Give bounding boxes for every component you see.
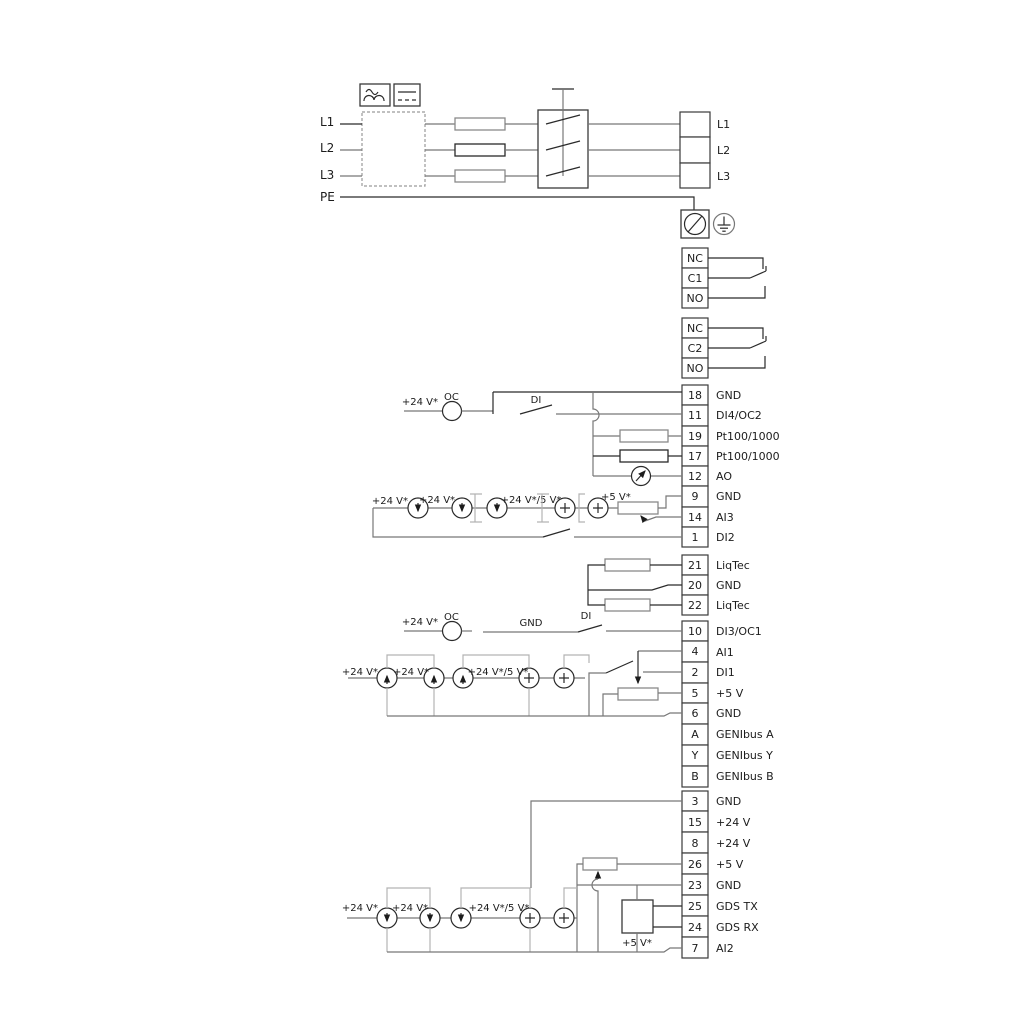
wire xyxy=(645,517,682,521)
ann-s5-24v-b: +24 V* xyxy=(392,903,428,914)
terminal-7-label: AI2 xyxy=(716,942,734,955)
terminal-26: 26 xyxy=(688,858,702,871)
fuse-l2 xyxy=(455,144,505,156)
ann-s3-gnd: GND xyxy=(520,618,543,629)
liqtec-terminal-block: 21 20 22 LiqTec GND LiqTec xyxy=(682,555,750,615)
ann-s1-24v: +24 V* xyxy=(402,397,438,408)
potentiometer-ai1 xyxy=(618,688,658,700)
wire xyxy=(577,864,583,885)
wire xyxy=(603,694,618,716)
terminal-9: 9 xyxy=(692,490,699,503)
diagram-svg: L1 L2 L3 PE xyxy=(0,0,1024,1024)
terminal-24: 24 xyxy=(688,921,702,934)
label-l1-out: L1 xyxy=(717,118,730,131)
terminal-12: 12 xyxy=(688,470,702,483)
liqtec-sensor-2 xyxy=(605,599,650,611)
potentiometer-ai3 xyxy=(618,502,658,514)
terminal-23: 23 xyxy=(688,879,702,892)
relay1-block: NC C1 NO xyxy=(682,248,766,308)
wires-to-fuses xyxy=(425,124,455,176)
loop xyxy=(387,688,529,716)
io3-terminal-block: 3 15 8 26 23 25 24 7 GND +24 V +24 V +5 … xyxy=(682,791,759,958)
terminal-22-label: LiqTec xyxy=(716,599,750,612)
pt100-sensor-1 xyxy=(620,430,668,442)
terminal-18-label: GND xyxy=(716,389,741,402)
loop xyxy=(387,928,530,952)
label-l3-out: L3 xyxy=(717,170,730,183)
wiring-diagram: L1 L2 L3 PE xyxy=(0,0,1024,1024)
io2-wiring: +24 V* OC GND DI +24 V* +24 V* +24 V*/5 … xyxy=(342,611,682,716)
pt100-sensor-2 xyxy=(620,450,668,462)
terminal-21: 21 xyxy=(688,559,702,572)
oc-contact-2 xyxy=(443,622,462,641)
terminal-25-label: GDS TX xyxy=(716,900,758,913)
terminal-20: 20 xyxy=(688,579,702,592)
terminal-6-label: GND xyxy=(716,707,741,720)
ann-s4-24v-a: +24 V* xyxy=(342,667,378,678)
wire xyxy=(653,906,682,927)
relay2-nc-wire xyxy=(708,328,763,339)
relay1-no-wire xyxy=(708,286,765,298)
label-l3-in: L3 xyxy=(320,168,334,182)
terminal-17: 17 xyxy=(688,450,702,463)
terminal-b-label: GENIbus B xyxy=(716,770,774,783)
terminal-15: 15 xyxy=(688,816,702,829)
terminal-18: 18 xyxy=(688,389,702,402)
terminal-5: 5 xyxy=(692,687,699,700)
terminal-7: 7 xyxy=(692,942,699,955)
ann-s1-di: DI xyxy=(531,395,542,406)
terminal-8: 8 xyxy=(692,837,699,850)
relay1-nc: NC xyxy=(687,252,703,265)
gds-sensor-box xyxy=(622,900,653,933)
liqtec-sensor-1 xyxy=(605,559,650,571)
ann-s3-24v: +24 V* xyxy=(402,617,438,628)
io2-terminal-block: 10 4 2 5 6 A Y B DI3/OC1 AI1 DI1 +5 V GN… xyxy=(682,621,774,787)
terminal-2-label: DI1 xyxy=(716,666,735,679)
wire-pe xyxy=(340,197,694,210)
wire xyxy=(387,713,682,716)
terminal-y-label: GENIbus Y xyxy=(716,749,773,762)
relay1-no: NO xyxy=(687,292,704,305)
terminal-20-label: GND xyxy=(716,579,741,592)
label-pe-in: PE xyxy=(320,190,335,204)
wire xyxy=(588,585,682,590)
terminal-12-label: AO xyxy=(716,470,732,483)
dc-symbol-icon xyxy=(394,84,420,106)
io1-terminal-block: 18 11 19 17 12 9 14 1 GND DI4/OC2 Pt100/… xyxy=(682,385,780,547)
relay1-nc-wire xyxy=(708,258,763,269)
contactor xyxy=(538,89,588,188)
io1-wiring: +24 V* OC DI xyxy=(402,392,682,486)
filter-box xyxy=(362,112,425,186)
terminal-21-label: LiqTec xyxy=(716,559,750,572)
wire xyxy=(658,496,682,508)
terminal-25: 25 xyxy=(688,900,702,913)
terminal-23-label: GND xyxy=(716,879,741,892)
loop xyxy=(564,888,577,908)
ann-s2-24v5v: +24 V*/5 V* xyxy=(501,495,562,506)
terminal-a-label: GENIbus A xyxy=(716,728,774,741)
terminal-24-label: GDS RX xyxy=(716,921,759,934)
terminal-4: 4 xyxy=(692,645,699,658)
wires-to-terminals xyxy=(588,124,680,176)
terminal-1-label: DI2 xyxy=(716,531,735,544)
branch-vertical xyxy=(593,392,599,476)
terminal-26-label: +5 V xyxy=(716,858,744,871)
pe-gland xyxy=(681,210,709,238)
ann-s5-24v5v: +24 V*/5 V* xyxy=(469,903,530,914)
terminal-6: 6 xyxy=(692,707,699,720)
wires-to-contactor xyxy=(505,124,540,176)
ann-s3-di: DI xyxy=(581,611,592,622)
wiper-stem xyxy=(592,879,598,952)
wire xyxy=(373,508,543,537)
liqtec-wiring xyxy=(588,559,682,611)
label-l1-in: L1 xyxy=(320,115,334,129)
di3-switch xyxy=(578,625,602,632)
terminal-10: 10 xyxy=(688,625,702,638)
ai3-wiring: +24 V* +24 V* +24 V*/5 V* +5 V* xyxy=(372,492,682,537)
relay2-no: NO xyxy=(687,362,704,375)
ac-symbol-icon xyxy=(360,84,390,106)
terminal-1: 1 xyxy=(692,531,699,544)
terminal-a: A xyxy=(691,728,699,741)
power-input-section: L1 L2 L3 PE xyxy=(320,84,694,210)
terminal-11: 11 xyxy=(688,409,702,422)
io3-wiring: +5 V* +24 V* +24 V* +24 V*/5 V* xyxy=(342,801,682,952)
ann-s5-24v-a: +24 V* xyxy=(342,903,378,914)
label-l2-in: L2 xyxy=(320,141,334,155)
relay2-no-wire xyxy=(708,356,765,368)
pot-wiper-arrow xyxy=(641,516,645,521)
label-l2-out: L2 xyxy=(717,144,730,157)
terminal-14-label: AI3 xyxy=(716,511,734,524)
oc-contact-1 xyxy=(443,402,462,421)
terminal-b: B xyxy=(691,770,699,783)
terminal-22: 22 xyxy=(688,599,702,612)
power-terminal-block: L1 L2 L3 xyxy=(680,112,730,188)
ao-meter-icon xyxy=(632,467,651,486)
di2-switch xyxy=(543,529,570,537)
di4-switch xyxy=(520,405,552,414)
relay2-c: C2 xyxy=(688,342,703,355)
terminal-19: 19 xyxy=(688,430,702,443)
terminal-3: 3 xyxy=(692,795,699,808)
relay1-c: C1 xyxy=(688,272,703,285)
terminal-9-label: GND xyxy=(716,490,741,503)
ann-s2-24v-a: +24 V* xyxy=(372,496,408,507)
relay2-block: NC C2 NO xyxy=(682,318,766,378)
terminal-4-label: AI1 xyxy=(716,646,734,659)
di1-switch xyxy=(606,661,633,673)
terminal-17-label: Pt100/1000 xyxy=(716,450,780,463)
terminal-8-label: +24 V xyxy=(716,837,751,850)
terminal-11-label: DI4/OC2 xyxy=(716,409,762,422)
loop xyxy=(564,655,589,668)
terminal-10-label: DI3/OC1 xyxy=(716,625,762,638)
terminal-15-label: +24 V xyxy=(716,816,751,829)
terminal-14: 14 xyxy=(688,511,702,524)
terminal-3-label: GND xyxy=(716,795,741,808)
relay2-nc: NC xyxy=(687,322,703,335)
terminal-5-label: +5 V xyxy=(716,687,744,700)
terminal-y: Y xyxy=(691,749,699,762)
terminal-2: 2 xyxy=(692,666,699,679)
gnd3-wire xyxy=(531,801,682,888)
fuse-l1 xyxy=(455,118,505,130)
terminal-19-label: Pt100/1000 xyxy=(716,430,780,443)
earth-icon xyxy=(714,214,735,235)
gnd18-wire xyxy=(493,392,682,414)
ann-s5-5v: +5 V* xyxy=(622,938,652,949)
potentiometer-ai2 xyxy=(583,858,617,870)
fuse-l3 xyxy=(455,170,505,182)
